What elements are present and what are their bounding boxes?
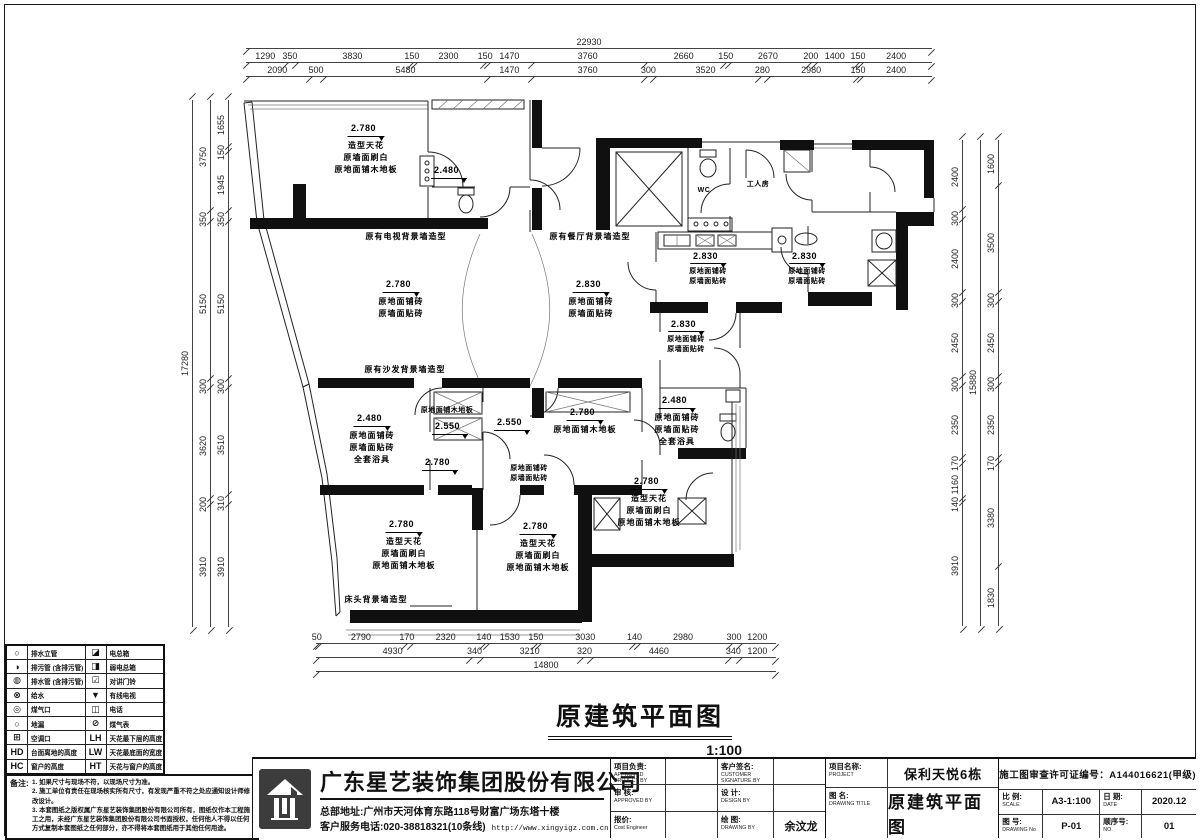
legend-label: 弱电总箱 (107, 660, 164, 673)
company-logo (259, 769, 311, 829)
company-website: http://www.xingyigz.com.cn (486, 825, 609, 833)
dimension-value: 350 (285, 50, 295, 63)
signature-fields: 项目负责:APPROVED PROJECT BY 客户签名:CUSTOMER S… (611, 759, 826, 838)
dimension-value: 1400 (814, 50, 856, 63)
dimension-value: 22930 (246, 36, 932, 49)
elevation-annotation: 2.780原地面铺砖原墙面贴砖 (379, 278, 424, 320)
field-customer-signature-value (774, 759, 825, 785)
dimension-value: 2320 (410, 631, 482, 644)
dimension-value: 2980 (767, 64, 856, 77)
company-section: 广东星艺装饰集团股份有限公司 总部地址:广州市天河体育东路118号财富广场东塔十… (253, 759, 611, 838)
notes-lines: 1. 如果尺寸与现场不符，以现场尺寸为准。2. 施工单位有责任在现场核实所有尺寸… (10, 778, 254, 834)
project-label: 项目名称:PROJECT (826, 759, 888, 787)
dimension-value: 1290 (246, 50, 285, 63)
dim-right-outer: 160035003002450300235017033801830 (984, 140, 999, 626)
dim-right-overall: 15880 (966, 140, 981, 626)
dimension-value: 1830 (984, 570, 999, 626)
dimension-value: 340 (469, 645, 480, 658)
dimension-value: 2790 (318, 631, 405, 644)
legend-symbol: LH (86, 731, 107, 744)
field-design-value (774, 785, 825, 811)
scale-label: 比 例:SCALE (999, 790, 1043, 815)
dim-top-overall: 22930 (246, 36, 932, 49)
legend-symbol: ⊞ (7, 731, 28, 744)
permit-number: 施工图审查许可证编号：A144016621(甲级) (999, 759, 1196, 790)
legend-label: 电话 (107, 703, 164, 716)
drawing-title-label: 图 名:DRAWING TITLE (826, 788, 888, 838)
elevation-marker: 2.780 (567, 406, 603, 421)
elevation-marker: 2.830 (573, 278, 609, 293)
dimension-value: 2350 (984, 389, 999, 461)
field-design: 设 计:DESIGN BY (718, 785, 774, 811)
note-item: 3. 本套图纸之版权属广东星艺装饰集团股份有限公司所有，图纸仅作本工程施工之用，… (32, 806, 254, 834)
elevation-marker: 2.780 (386, 518, 422, 533)
legend-symbol: ▼ (86, 689, 107, 702)
dimension-value: 3760 (531, 50, 643, 63)
elevation-annotation: 2.830原地面铺砖原墙面贴砖 (689, 250, 727, 287)
elevation-marker: 2.780 (631, 475, 667, 490)
elevation-marker: 2.480 (431, 164, 467, 179)
elevation-marker: 2.780 (422, 456, 458, 471)
elevation-marker: 2.780 (520, 520, 556, 535)
elevation-annotation: 2.830原地面铺砖原墙面贴砖 (667, 318, 705, 355)
notes-box: 备注: 1. 如果尺寸与现场不符，以现场尺寸为准。2. 施工单位有责任在现场核实… (5, 774, 259, 840)
field-approved-value (666, 785, 718, 811)
project-value: 保利天悦6栋 (888, 759, 998, 787)
floor-plan: 2.780造型天花原墙面刷白原地面铺木地板2.480原有电视背景墙造型原有餐厅背… (180, 92, 945, 640)
dimension-value: 3910 (214, 508, 229, 627)
legend-symbol: ○ (7, 717, 28, 730)
legend-label: 天花与窗户的高度 (107, 760, 164, 773)
legend-row: ◍排水管 (含排污管)☑对讲门铃 (7, 674, 163, 688)
legend-symbol: ☑ (86, 674, 107, 687)
elevation-annotation: 2.550 (432, 420, 468, 438)
elevation-annotation: 2.780原地面铺木地板 (554, 406, 617, 436)
legend-label: 给水 (28, 689, 86, 702)
elevation-annotation: 2.830原地面铺砖原墙面贴砖 (788, 250, 826, 287)
title-block: 广东星艺装饰集团股份有限公司 总部地址:广州市天河体育东路118号财富广场东塔十… (252, 757, 1196, 838)
dimension-value: 2400 (860, 50, 932, 63)
text-annotation: WC (698, 186, 711, 196)
field-customer-signature: 客户签名:CUSTOMER SIGNATURE BY (718, 759, 774, 785)
field-cost-value (666, 812, 718, 838)
legend-symbol: HD (7, 745, 28, 758)
dimension-value: 3750 (196, 100, 211, 214)
plan-title-scale: 1:100 (520, 742, 760, 758)
dimension-value: 320 (580, 645, 590, 658)
dimension-value: 500 (309, 64, 324, 77)
elevation-marker: 2.480 (659, 394, 695, 409)
elevation-marker: 2.550 (432, 420, 468, 435)
dim-top-row2: 2090500548014703760300352028029801502400 (246, 64, 932, 77)
dimension-value: 3910 (948, 506, 963, 626)
legend-symbol: ◑ (7, 660, 28, 673)
field-cost: 报价:Cost Engineer (611, 812, 666, 838)
dimension-value: 2400 (948, 140, 963, 213)
note-item: 2. 施工单位有责任在现场核实所有尺寸，有发现严重不符之处应通知设计师修改设计。 (32, 787, 254, 806)
dimension-value: 280 (758, 64, 766, 77)
elevation-annotation: 2.780造型天花原墙面刷白原地面铺木地板 (507, 520, 570, 574)
elevation-annotation: 2.780造型天花原墙面刷白原地面铺木地板 (373, 518, 436, 572)
dimension-value: 4930 (316, 645, 469, 658)
dimension-value: 3760 (531, 64, 643, 77)
legend-row: ◑排污管 (含排污管)◨弱电总箱 (7, 660, 163, 674)
elevation-annotation: 2.480 (431, 164, 467, 182)
dimension-value: 1945 (214, 155, 229, 214)
house-icon (266, 777, 304, 821)
drawing-sheet: 2.780造型天花原墙面刷白原地面铺木地板2.480原有电视背景墙造型原有餐厅背… (0, 0, 1200, 840)
dimension-value: 5480 (323, 64, 487, 77)
legend-row: HC窗户的高度HT天花与窗户的高度 (7, 760, 163, 773)
plan-title: 原建筑平面图 1:100 (520, 697, 760, 758)
legend-symbol: ◪ (86, 646, 107, 659)
elevation-annotation: 2.480原地面铺砖原墙面贴砖全套浴具 (350, 412, 395, 466)
dimension-value: 2300 (414, 50, 483, 63)
field-approved: 审 核:APPROVED BY (611, 785, 666, 811)
elevation-annotation: 2.550 (494, 416, 530, 434)
dimension-value: 17280 (178, 100, 193, 627)
legend-symbol: HC (7, 760, 28, 773)
dimension-value: 3030 (538, 631, 632, 644)
plan-title-text: 原建筑平面图 (548, 697, 732, 740)
legend-symbol: ○ (7, 646, 28, 659)
legend-row: ○排水立管◪电总箱 (7, 646, 163, 660)
elevation-marker: 2.780 (348, 122, 384, 137)
dimension-value: 2670 (728, 50, 808, 63)
dimension-value: 4460 (590, 645, 729, 658)
elevation-annotation: 2.480原地面铺砖原墙面贴砖全套浴具 (655, 394, 700, 448)
elevation-marker: 2.550 (494, 416, 530, 431)
dimension-value: 3830 (295, 50, 410, 63)
dim-left-inner: 16551501945350515030035103103910 (214, 100, 229, 627)
field-drawn-by-value: 余汶龙 (774, 812, 825, 838)
dimension-value: 5150 (196, 225, 211, 382)
company-name: 广东星艺装饰集团股份有限公司 (320, 765, 604, 800)
legend-label: 有线电视 (107, 689, 164, 702)
elevation-marker: 2.830 (668, 318, 704, 332)
dim-bottom-overall: 14800 (316, 659, 776, 672)
legend-label: 煤气口 (28, 703, 86, 716)
legend-symbol: ⊘ (86, 717, 107, 730)
dim-right-inner: 240030024003002450300235017011601403910 (948, 140, 963, 626)
legend-symbol: ◍ (7, 674, 28, 687)
legend-symbol: ◨ (86, 660, 107, 673)
dimension-value: 3520 (653, 64, 758, 77)
legend-label: 排水管 (含排污管) (28, 674, 86, 687)
legend-label: 天花最下层的高度 (107, 731, 164, 744)
legend-label: 电总箱 (107, 646, 164, 659)
dimension-value: 1530 (486, 631, 534, 644)
legend-row: HD台面离地的高度LW天花最底面的宽度 (7, 745, 163, 759)
legend-label: 排水立管 (28, 646, 86, 659)
legend-row: ⊗给水▼有线电视 (7, 689, 163, 703)
text-annotation: 原地面铺木地板 (421, 406, 474, 416)
dimension-value: 2980 (637, 631, 730, 644)
legend-label: 窗户的高度 (28, 760, 86, 773)
elevation-marker: 2.830 (690, 250, 726, 264)
dimension-value: 14800 (316, 659, 776, 672)
date-value: 2020.12 (1142, 790, 1196, 815)
date-label: 日 期:DATE (1100, 790, 1142, 815)
dim-top-row1: 1290350383015023001501470376026601502670… (246, 50, 932, 63)
notes-title: 备注: (10, 778, 29, 790)
text-annotation: 原有沙发背景墙造型 (365, 364, 446, 376)
dimension-value: 3210 (480, 645, 580, 658)
text-annotation: 工人房 (747, 180, 770, 190)
dimension-value: 3910 (196, 508, 211, 627)
dim-bottom-row1: 5027901702320140153015030301402980300120… (316, 631, 776, 644)
company-phone: 客户服务电话:020-38818321(10条线) (320, 818, 486, 833)
legend-label: 台面离地的高度 (28, 745, 86, 758)
legend-symbol: ◎ (7, 703, 28, 716)
legend-symbol: LW (86, 745, 107, 758)
drawing-no-value: P-01 (1043, 815, 1100, 839)
dimension-value: 1200 (739, 631, 776, 644)
field-drawn-by: 绘 图:DRAWING BY (718, 812, 774, 838)
legend-row: ⊞空调口LH天花最下层的高度 (7, 731, 163, 745)
field-project-lead: 项目负责:APPROVED PROJECT BY (611, 759, 666, 785)
dimension-value: 2400 (948, 223, 963, 296)
dimension-value: 300 (644, 64, 653, 77)
elevation-marker: 2.830 (789, 250, 825, 264)
dimension-value: 2400 (860, 64, 932, 77)
dimension-value: 2450 (948, 305, 963, 380)
legend-label: 空调口 (28, 731, 86, 744)
scale-value: A3-1:100 (1043, 790, 1100, 815)
dimension-value: 2660 (644, 50, 724, 63)
dimension-value: 1470 (487, 64, 531, 77)
dimension-value: 1600 (984, 140, 999, 189)
legend-symbol: ◫ (86, 703, 107, 716)
legend-label: 煤气表 (107, 717, 164, 730)
dimension-value: 1200 (739, 645, 776, 658)
dimension-value: 2350 (948, 389, 963, 461)
legend-row: ○地漏⊘煤气表 (7, 717, 163, 731)
legend-label: 排污管 (含排污管) (28, 660, 86, 673)
legend-label: 天花最底面的宽度 (107, 745, 164, 758)
elevation-marker: 2.780 (383, 278, 419, 293)
elevation-annotation: 2.830原地面铺砖原墙面贴砖 (569, 278, 614, 320)
dimension-value: 340 (728, 645, 739, 658)
elevation-marker: 2.480 (354, 412, 390, 427)
legend-label: 地漏 (28, 717, 86, 730)
drawing-no-label: 图 号:DRAWING No (999, 815, 1043, 839)
legend-row: ◎煤气口◫电话 (7, 703, 163, 717)
drawing-title-value: 原建筑平面图 (888, 788, 998, 838)
dimension-value: 3620 (196, 391, 211, 501)
company-address: 总部地址:广州市天河体育东路118号财富广场东塔十楼 (320, 803, 604, 818)
text-annotation: 原有电视背景墙造型 (366, 231, 447, 243)
dimension-value: 1655 (214, 100, 229, 150)
legend-table: ○排水立管◪电总箱◑排污管 (含排污管)◨弱电总箱◍排水管 (含排污管)☑对讲门… (5, 644, 165, 775)
dimension-value: 1470 (487, 50, 531, 63)
field-project-lead-value (666, 759, 718, 785)
text-annotation: 原地面铺砖原墙面贴砖 (510, 464, 548, 484)
dimension-value: 3500 (984, 189, 999, 296)
dimension-value: 3380 (984, 467, 999, 570)
elevation-annotation: 2.780造型天花原墙面刷白原地面铺木地板 (618, 475, 681, 529)
dim-left-overall: 17280 (178, 100, 193, 627)
dimension-value: 15880 (966, 140, 981, 626)
text-annotation: 床头背景墙造型 (345, 594, 408, 606)
dim-left-mid: 3750350515030036202003910 (196, 100, 211, 627)
elevation-annotation: 2.780造型天花原墙面刷白原地面铺木地板 (335, 122, 398, 176)
dimension-value: 2090 (246, 64, 309, 77)
dimension-value: 2450 (984, 305, 999, 380)
dimension-value: 300 (729, 631, 738, 644)
elevation-annotation: 2.780 (422, 456, 458, 474)
seq-no-label: 顺序号:NO. (1100, 815, 1142, 839)
legend-symbol: HT (86, 760, 107, 773)
dim-bottom-row2: 4930340321032044603401200 (316, 645, 776, 658)
text-annotation: 原有餐厅背景墙造型 (550, 231, 631, 243)
seq-no-value: 01 (1142, 815, 1196, 839)
permit-scale-section: 施工图审查许可证编号：A144016621(甲级) 比 例:SCALE A3-1… (999, 759, 1196, 838)
legend-label: 对讲门铃 (107, 674, 164, 687)
legend-symbol: ⊗ (7, 689, 28, 702)
note-item: 1. 如果尺寸与现场不符，以现场尺寸为准。 (32, 778, 254, 787)
dimension-value: 5150 (214, 225, 229, 382)
project-name-section: 项目名称:PROJECT 保利天悦6栋 图 名:DRAWING TITLE 原建… (826, 759, 999, 838)
company-text: 广东星艺装饰集团股份有限公司 总部地址:广州市天河体育东路118号财富广场东塔十… (311, 765, 604, 833)
dimension-value: 3510 (214, 391, 229, 498)
